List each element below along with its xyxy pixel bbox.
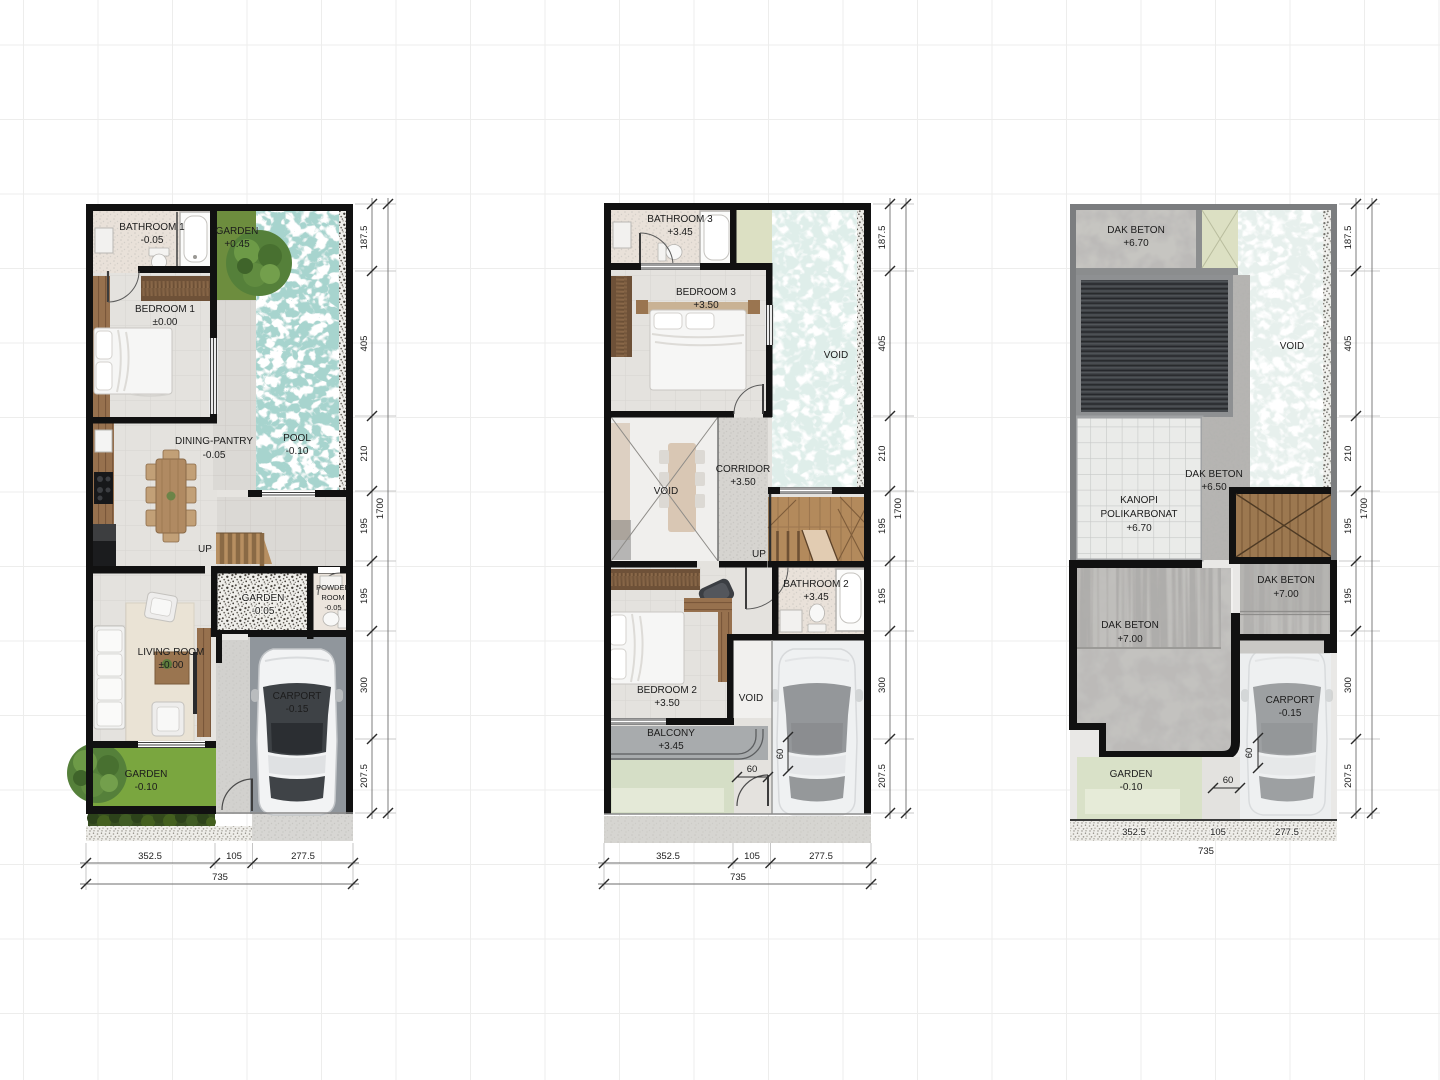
svg-text:BATHROOM 2: BATHROOM 2: [783, 579, 849, 590]
svg-text:BATHROOM 1: BATHROOM 1: [119, 222, 185, 233]
svg-text:60: 60: [775, 749, 786, 760]
svg-text:735: 735: [212, 872, 228, 883]
svg-text:DINING-PANTRY: DINING-PANTRY: [175, 436, 253, 447]
svg-text:1700: 1700: [893, 498, 904, 519]
svg-text:POLIKARBONAT: POLIKARBONAT: [1100, 509, 1177, 520]
svg-text:DAK BETON: DAK BETON: [1257, 575, 1315, 586]
svg-text:VOID: VOID: [654, 486, 678, 497]
svg-text:-0.15: -0.15: [1279, 708, 1302, 719]
svg-text:±0.00: ±0.00: [153, 317, 178, 328]
svg-text:352.5: 352.5: [1122, 827, 1146, 838]
svg-text:277.5: 277.5: [1275, 827, 1299, 838]
svg-text:195: 195: [1343, 588, 1354, 604]
svg-text:CARPORT: CARPORT: [1266, 695, 1315, 706]
svg-text:BEDROOM 2: BEDROOM 2: [637, 685, 697, 696]
svg-text:-0.10: -0.10: [286, 446, 309, 457]
svg-text:352.5: 352.5: [656, 851, 680, 862]
svg-text:300: 300: [359, 677, 370, 693]
svg-text:+3.45: +3.45: [803, 592, 829, 603]
svg-text:187.5: 187.5: [877, 226, 888, 250]
svg-text:207.5: 207.5: [877, 764, 888, 788]
svg-text:LIVING ROOM: LIVING ROOM: [138, 647, 205, 658]
svg-text:-0.10: -0.10: [1120, 782, 1143, 793]
svg-text:BATHROOM 3: BATHROOM 3: [647, 214, 713, 225]
svg-text:+6.70: +6.70: [1123, 238, 1149, 249]
svg-text:+3.50: +3.50: [654, 698, 680, 709]
svg-text:-0.15: -0.15: [286, 704, 309, 715]
svg-text:195: 195: [877, 588, 888, 604]
svg-text:405: 405: [1343, 336, 1354, 352]
svg-text:+0.45: +0.45: [224, 239, 250, 250]
svg-text:210: 210: [877, 446, 888, 462]
svg-text:210: 210: [359, 446, 370, 462]
svg-text:+3.50: +3.50: [730, 477, 756, 488]
svg-text:60: 60: [1223, 775, 1234, 786]
svg-text:277.5: 277.5: [291, 851, 315, 862]
svg-text:1700: 1700: [375, 498, 386, 519]
svg-text:GARDEN: GARDEN: [216, 226, 259, 237]
svg-text:BEDROOM 1: BEDROOM 1: [135, 304, 195, 315]
svg-text:CARPORT: CARPORT: [273, 691, 322, 702]
svg-text:POOL: POOL: [283, 433, 311, 444]
svg-text:KANOPI: KANOPI: [1120, 495, 1158, 506]
svg-text:+3.50: +3.50: [693, 300, 719, 311]
svg-text:+3.45: +3.45: [667, 227, 693, 238]
svg-text:105: 105: [1210, 827, 1226, 838]
svg-text:300: 300: [1343, 677, 1354, 693]
svg-text:187.5: 187.5: [1343, 226, 1354, 250]
svg-text:DAK BETON: DAK BETON: [1185, 469, 1243, 480]
svg-text:300: 300: [877, 677, 888, 693]
svg-text:VOID: VOID: [739, 693, 763, 704]
svg-text:-0.05: -0.05: [252, 606, 275, 617]
svg-text:POWDER: POWDER: [316, 583, 350, 592]
svg-text:60: 60: [1244, 748, 1255, 759]
svg-text:195: 195: [359, 518, 370, 534]
svg-text:-0.05: -0.05: [203, 450, 226, 461]
svg-text:DAK BETON: DAK BETON: [1107, 225, 1165, 236]
svg-text:195: 195: [1343, 518, 1354, 534]
svg-text:GARDEN: GARDEN: [242, 593, 285, 604]
svg-text:187.5: 187.5: [359, 226, 370, 250]
svg-text:195: 195: [877, 518, 888, 534]
svg-text:207.5: 207.5: [1343, 764, 1354, 788]
svg-text:60: 60: [747, 764, 758, 775]
svg-text:405: 405: [359, 336, 370, 352]
svg-text:1700: 1700: [1359, 498, 1370, 519]
svg-text:277.5: 277.5: [809, 851, 833, 862]
svg-text:105: 105: [744, 851, 760, 862]
svg-text:GARDEN: GARDEN: [1110, 769, 1153, 780]
svg-text:+7.00: +7.00: [1117, 634, 1143, 645]
svg-text:CORRIDOR: CORRIDOR: [716, 464, 770, 475]
svg-text:VOID: VOID: [1280, 341, 1304, 352]
svg-text:BEDROOM 3: BEDROOM 3: [676, 287, 736, 298]
svg-text:±0.00: ±0.00: [159, 660, 184, 671]
svg-text:-0.05: -0.05: [141, 235, 164, 246]
svg-text:ROOM: ROOM: [321, 593, 344, 602]
svg-text:UP: UP: [198, 544, 212, 555]
svg-text:DAK BETON: DAK BETON: [1101, 620, 1159, 631]
svg-text:207.5: 207.5: [359, 764, 370, 788]
svg-text:BALCONY: BALCONY: [647, 728, 695, 739]
svg-text:105: 105: [226, 851, 242, 862]
svg-text:+6.70: +6.70: [1126, 523, 1152, 534]
svg-text:+7.00: +7.00: [1273, 589, 1299, 600]
svg-text:-0.05: -0.05: [324, 603, 341, 612]
svg-text:210: 210: [1343, 446, 1354, 462]
svg-text:UP: UP: [752, 549, 766, 560]
svg-text:195: 195: [359, 588, 370, 604]
svg-text:GARDEN: GARDEN: [125, 769, 168, 780]
svg-text:735: 735: [730, 872, 746, 883]
svg-text:-0.10: -0.10: [135, 782, 158, 793]
svg-text:405: 405: [877, 336, 888, 352]
svg-text:352.5: 352.5: [138, 851, 162, 862]
svg-text:+6.50: +6.50: [1201, 482, 1227, 493]
svg-text:VOID: VOID: [824, 350, 848, 361]
svg-text:+3.45: +3.45: [658, 741, 684, 752]
svg-text:735: 735: [1198, 846, 1214, 857]
